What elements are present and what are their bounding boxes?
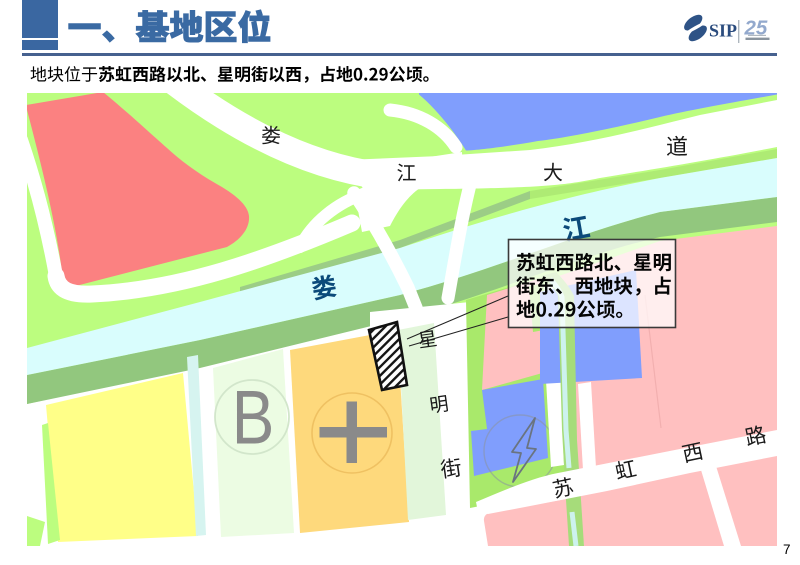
svg-text:B: B (232, 374, 275, 460)
svg-text:SIP: SIP (709, 21, 737, 41)
svg-text:25: 25 (744, 17, 768, 40)
